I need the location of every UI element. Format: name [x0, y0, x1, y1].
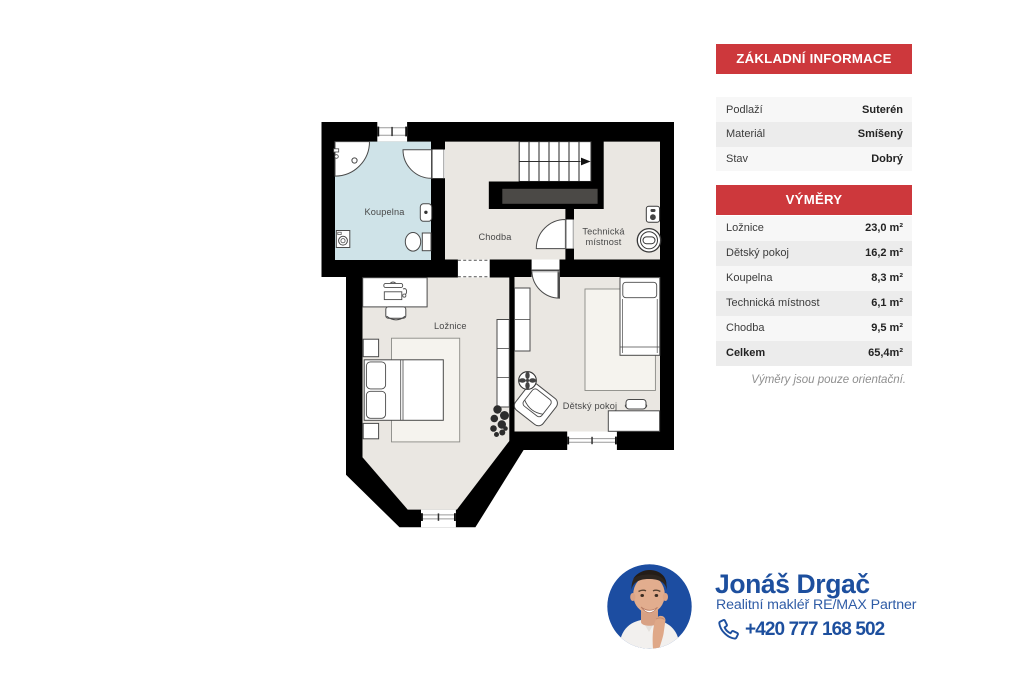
svg-text:Ložnice: Ložnice: [434, 321, 467, 331]
svg-text:místnost: místnost: [586, 237, 622, 247]
svg-text:Dětský pokoj: Dětský pokoj: [563, 401, 617, 411]
svg-text:Chodba: Chodba: [478, 232, 512, 242]
svg-text:Technická: Technická: [582, 227, 625, 237]
svg-text:Koupelna: Koupelna: [364, 207, 405, 217]
